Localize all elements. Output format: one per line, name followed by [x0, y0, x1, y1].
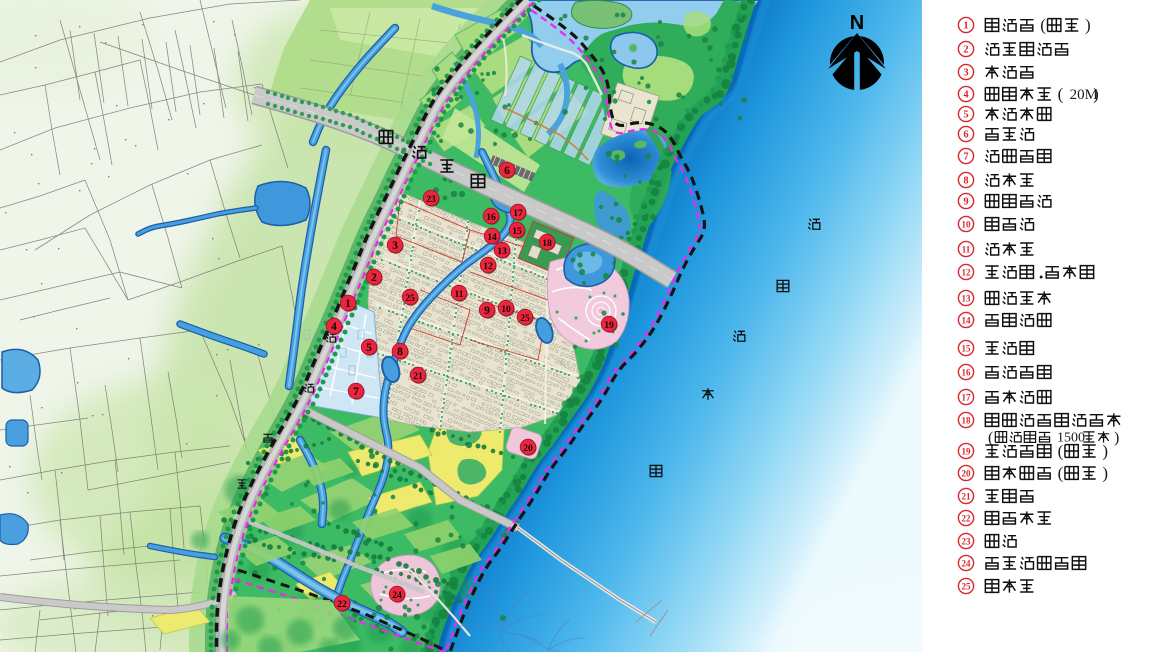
svg-text:19: 19 [604, 320, 614, 331]
svg-text:5: 5 [366, 342, 372, 354]
svg-text:14: 14 [962, 315, 972, 325]
svg-text:): ) [1114, 430, 1119, 447]
svg-text:5: 5 [963, 109, 968, 120]
svg-text:1: 1 [963, 20, 968, 31]
svg-text:14: 14 [487, 232, 497, 243]
svg-text:(: ( [1058, 85, 1064, 104]
svg-text:): ) [1102, 464, 1108, 483]
svg-text:6: 6 [963, 129, 968, 140]
svg-text:16: 16 [486, 212, 496, 223]
svg-text:9: 9 [963, 196, 968, 207]
svg-text:13: 13 [962, 293, 972, 303]
svg-text:17: 17 [962, 392, 972, 402]
svg-text:(: ( [1040, 16, 1046, 35]
svg-text:N: N [850, 12, 864, 34]
svg-text:1500: 1500 [1057, 431, 1085, 446]
svg-text:17: 17 [513, 208, 523, 219]
svg-text:8: 8 [397, 346, 403, 358]
svg-text:24: 24 [962, 558, 972, 568]
svg-text:2: 2 [371, 272, 377, 284]
svg-text:1: 1 [345, 298, 351, 310]
svg-text:10: 10 [501, 304, 511, 315]
svg-text:18: 18 [542, 238, 552, 249]
svg-text:12: 12 [483, 261, 493, 272]
svg-text:16: 16 [962, 367, 972, 377]
svg-text:25: 25 [520, 313, 530, 324]
svg-text:10: 10 [962, 219, 972, 229]
svg-text:(: ( [1058, 464, 1064, 483]
svg-text:18: 18 [962, 415, 972, 425]
svg-text:24: 24 [392, 590, 402, 601]
svg-text:25: 25 [405, 293, 415, 304]
svg-text:4: 4 [331, 321, 337, 333]
svg-text:4: 4 [963, 89, 969, 100]
svg-text:21: 21 [962, 491, 972, 501]
svg-text:20: 20 [962, 468, 972, 478]
svg-text:3: 3 [392, 240, 398, 252]
svg-text:(: ( [988, 430, 993, 447]
svg-text:): ) [1085, 16, 1091, 35]
svg-text:): ) [1093, 85, 1099, 104]
svg-text:15: 15 [512, 226, 522, 237]
svg-text:11: 11 [962, 244, 971, 254]
svg-text:7: 7 [353, 386, 359, 398]
svg-text:11: 11 [454, 289, 463, 300]
svg-text:15: 15 [962, 343, 972, 353]
svg-text:21: 21 [413, 371, 423, 382]
svg-text:23: 23 [426, 194, 436, 205]
svg-text:19: 19 [962, 446, 972, 456]
svg-text:2: 2 [963, 44, 968, 55]
svg-text:6: 6 [504, 165, 510, 177]
svg-text:9: 9 [484, 305, 490, 317]
svg-text:20: 20 [523, 443, 533, 454]
svg-text:25: 25 [962, 581, 972, 591]
svg-text:22: 22 [337, 599, 347, 610]
svg-text:13: 13 [497, 246, 507, 257]
svg-text:12: 12 [962, 267, 972, 277]
svg-text:8: 8 [963, 175, 968, 186]
svg-text:3: 3 [963, 67, 968, 78]
svg-text:22: 22 [962, 513, 972, 523]
svg-text:7: 7 [963, 151, 968, 162]
svg-text:): ) [1102, 442, 1108, 461]
svg-text:23: 23 [962, 536, 972, 546]
